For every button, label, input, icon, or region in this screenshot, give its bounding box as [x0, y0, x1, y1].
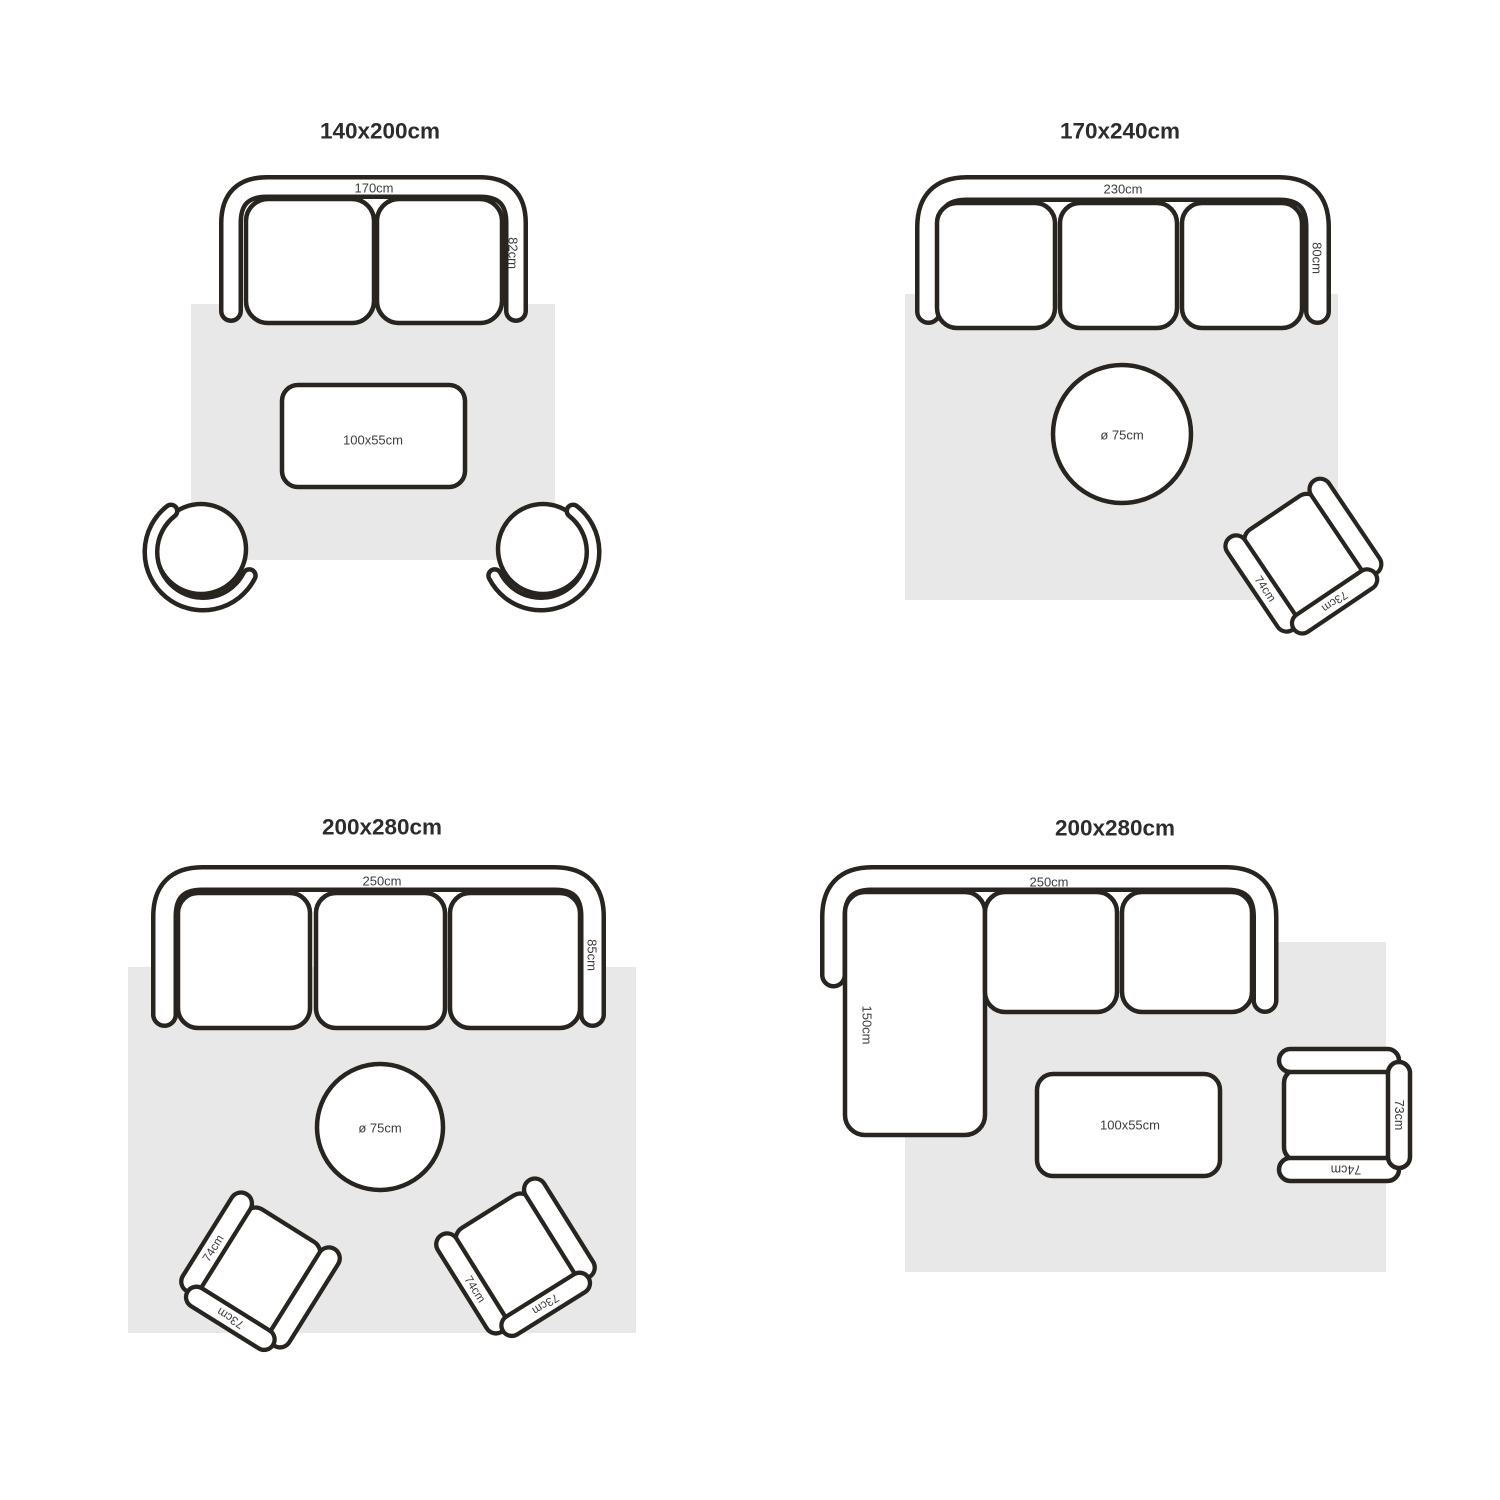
sofa-cushion — [1182, 203, 1302, 328]
coffee-table-label: 100x55cm — [343, 433, 403, 448]
sofa-cushion — [246, 199, 374, 323]
sofa-cushion — [1060, 203, 1177, 328]
coffee-table: 100x55cm — [282, 385, 465, 487]
sofa-width-label: 250cm — [1029, 875, 1068, 890]
coffee-table-label: 100x55cm — [1100, 1118, 1160, 1133]
armchair-arm-right — [1279, 1049, 1399, 1072]
diagram-canvas: 140x200cm 170cm 82cm 100x55cm 170x240cm — [0, 0, 1500, 1500]
sofa-depth-label: 82cm — [506, 237, 521, 269]
armchair-side-label: 74cm — [1331, 1163, 1362, 1177]
panel-title: 200x280cm — [1055, 816, 1175, 841]
armchair-seat — [1284, 1069, 1392, 1161]
sofa-3-seat: 230cm 80cm — [929, 182, 1325, 329]
round-chair-left — [151, 504, 249, 604]
round-table-label: ø 75cm — [1100, 428, 1143, 443]
round-table: ø 75cm — [317, 1064, 443, 1190]
sofa-cushion — [316, 893, 445, 1028]
sofa-depth-label: 85cm — [585, 939, 600, 971]
rug-size-guide-diagram: 140x200cm 170cm 82cm 100x55cm 170x240cm — [0, 0, 1500, 1500]
sofa-3-seat: 250cm 85cm — [165, 874, 600, 1029]
sofa-2-seat: 170cm 82cm — [231, 181, 521, 324]
round-table: ø 75cm — [1053, 365, 1191, 503]
armchair: 74cm 73cm — [1279, 1049, 1410, 1181]
sofa-cushion — [1122, 892, 1252, 1012]
sofa-width-label: 250cm — [362, 874, 401, 889]
coffee-table: 100x55cm — [1037, 1074, 1220, 1176]
armchair-back-label: 73cm — [1392, 1100, 1406, 1131]
round-chair-right — [495, 504, 593, 604]
panel-200x280-sofa: 200x280cm 250cm 85cm ø 75cm 74cm 73cm — [128, 815, 636, 1361]
panel-140x200: 140x200cm 170cm 82cm 100x55cm — [151, 119, 593, 605]
round-table-label: ø 75cm — [358, 1121, 401, 1136]
sofa-width-label: 230cm — [1103, 182, 1142, 197]
panel-200x280-sectional: 200x280cm 250cm 150cm 100x55cm 74cm 73cm — [834, 816, 1411, 1273]
sofa-width-label: 170cm — [354, 181, 393, 196]
sofa-cushion — [178, 893, 310, 1028]
panel-170x240: 170x240cm 230cm 80cm ø 75cm 74cm 73cm — [905, 119, 1391, 645]
panel-title: 140x200cm — [320, 119, 440, 144]
chaise-length-label: 150cm — [860, 1005, 875, 1044]
sofa-cushion — [937, 203, 1055, 328]
sofa-cushion — [450, 893, 580, 1028]
panel-title: 170x240cm — [1060, 119, 1180, 144]
panel-title: 200x280cm — [322, 815, 442, 840]
sofa-cushion — [377, 199, 502, 323]
sofa-depth-label: 80cm — [1310, 242, 1325, 274]
sofa-cushion — [985, 892, 1117, 1012]
